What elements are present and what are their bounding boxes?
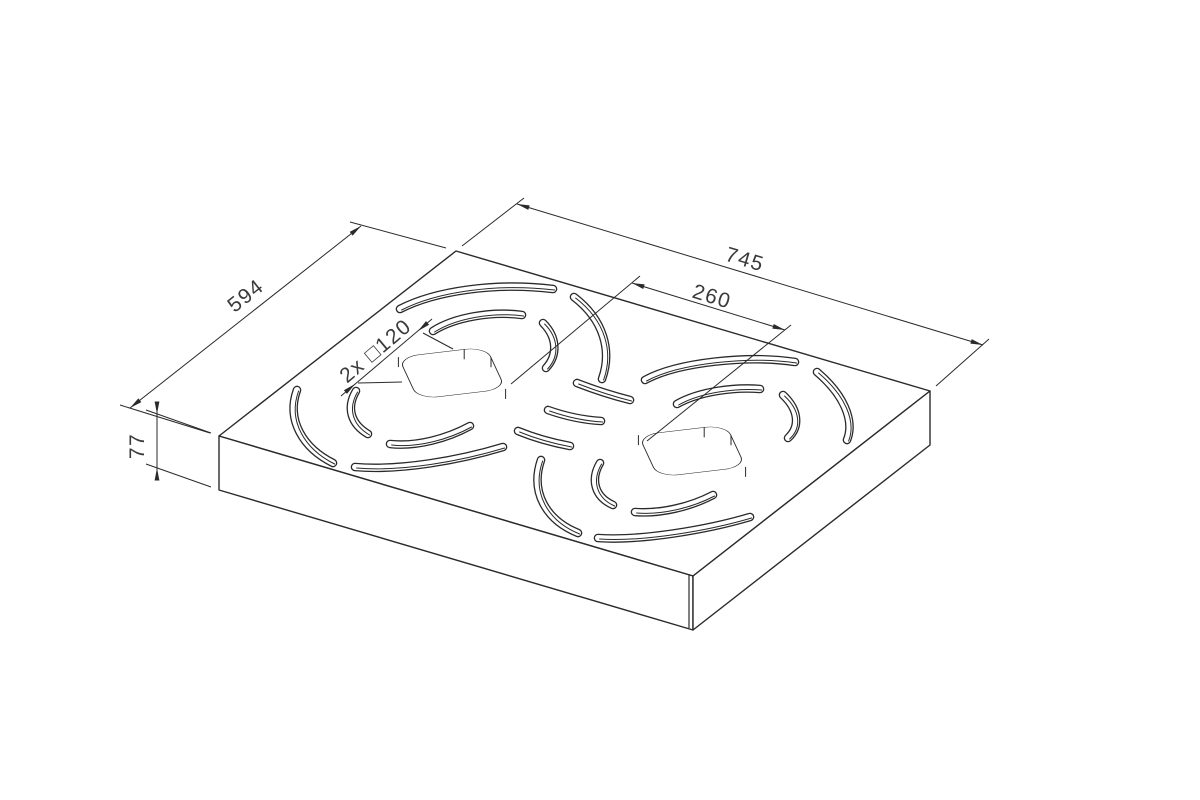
ext-line bbox=[936, 339, 989, 386]
dim-label-hole-gap: 260 bbox=[690, 280, 735, 314]
technical-drawing: 745 594 260 2x □120 77 bbox=[0, 0, 1200, 800]
plate-body bbox=[219, 251, 930, 630]
dim-label-width: 594 bbox=[223, 275, 268, 318]
ext-line bbox=[146, 410, 211, 433]
ext-line bbox=[350, 222, 446, 248]
drawing-sheet: 745 594 260 2x □120 77 bbox=[0, 0, 1200, 800]
arrowhead bbox=[155, 402, 160, 415]
dim-label-thickness: 77 bbox=[126, 433, 149, 459]
arrowhead bbox=[155, 468, 160, 481]
ext-line bbox=[462, 198, 524, 246]
dim-label-length: 745 bbox=[723, 243, 768, 276]
ext-line bbox=[120, 405, 210, 433]
